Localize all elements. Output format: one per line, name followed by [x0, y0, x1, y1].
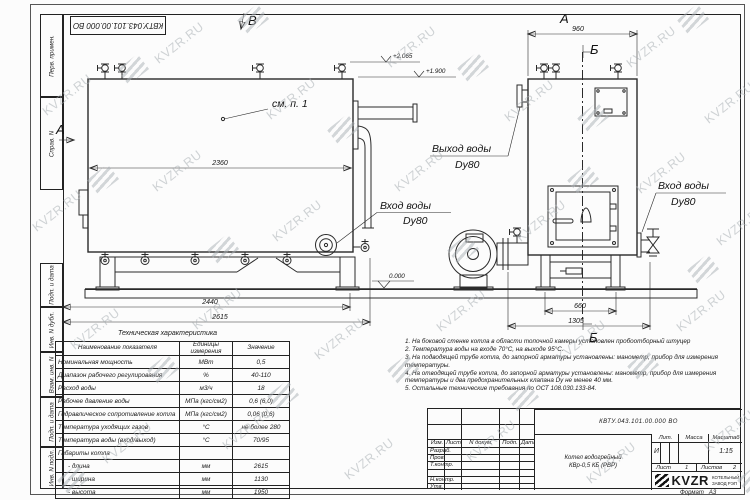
level-2065: +2.065: [393, 53, 413, 60]
drawing-sheet: Перв. примен. Справ. N Подп. и дата Инв.…: [0, 0, 750, 500]
inlet-water-dn-side: Dy80: [403, 215, 428, 227]
outlet-water-dn: Dy80: [455, 159, 480, 171]
water-outlet-flange: [517, 85, 528, 107]
see-note-label: см. п. 1: [272, 98, 308, 110]
ground-line: [85, 289, 697, 298]
dim-2615: 2615: [211, 314, 228, 321]
front-supports: [536, 255, 625, 290]
dimensions-front-view: 960 660 1305: [508, 26, 650, 330]
dimensions-side-view: 2440 2615: [63, 258, 370, 326]
boiler-side-view: 2360: [79, 64, 417, 290]
marker-v-top: В: [248, 13, 257, 28]
top-access-panel: [595, 88, 627, 116]
view-markers: А В А Б Б: [55, 11, 599, 345]
dim-660: 660: [574, 303, 586, 310]
inlet-water-dn-front: Dy80: [671, 196, 696, 208]
dim-960: 960: [572, 26, 584, 33]
water-inlet-valve: [637, 229, 659, 257]
boiler-views-drawing: 2360: [0, 0, 750, 500]
fan-duct: [497, 228, 528, 270]
level-marks: +2.065 +1.900 0.000: [350, 53, 456, 288]
boiler-front-view: [449, 52, 659, 322]
level-0000: 0.000: [389, 273, 405, 280]
level-1900: +1.900: [426, 68, 446, 75]
dim-2360: 2360: [211, 160, 228, 167]
outlet-water-label: Выход воды: [432, 143, 491, 155]
dim-1305: 1305: [568, 318, 584, 325]
marker-b-top: Б: [590, 42, 599, 57]
inlet-water-label-front: Вход воды: [658, 180, 709, 192]
support-frame: [96, 257, 359, 290]
callout-labels: см. п. 1 Вход воды Dy80 Выход воды Dy80 …: [221, 98, 726, 243]
marker-a-left: А: [55, 122, 65, 137]
blower-fan: [449, 230, 497, 290]
inlet-water-label-side: Вход воды: [380, 200, 431, 212]
marker-a-top: А: [559, 11, 569, 26]
dim-2440: 2440: [201, 299, 218, 306]
marker-b-bottom: Б: [589, 330, 598, 345]
